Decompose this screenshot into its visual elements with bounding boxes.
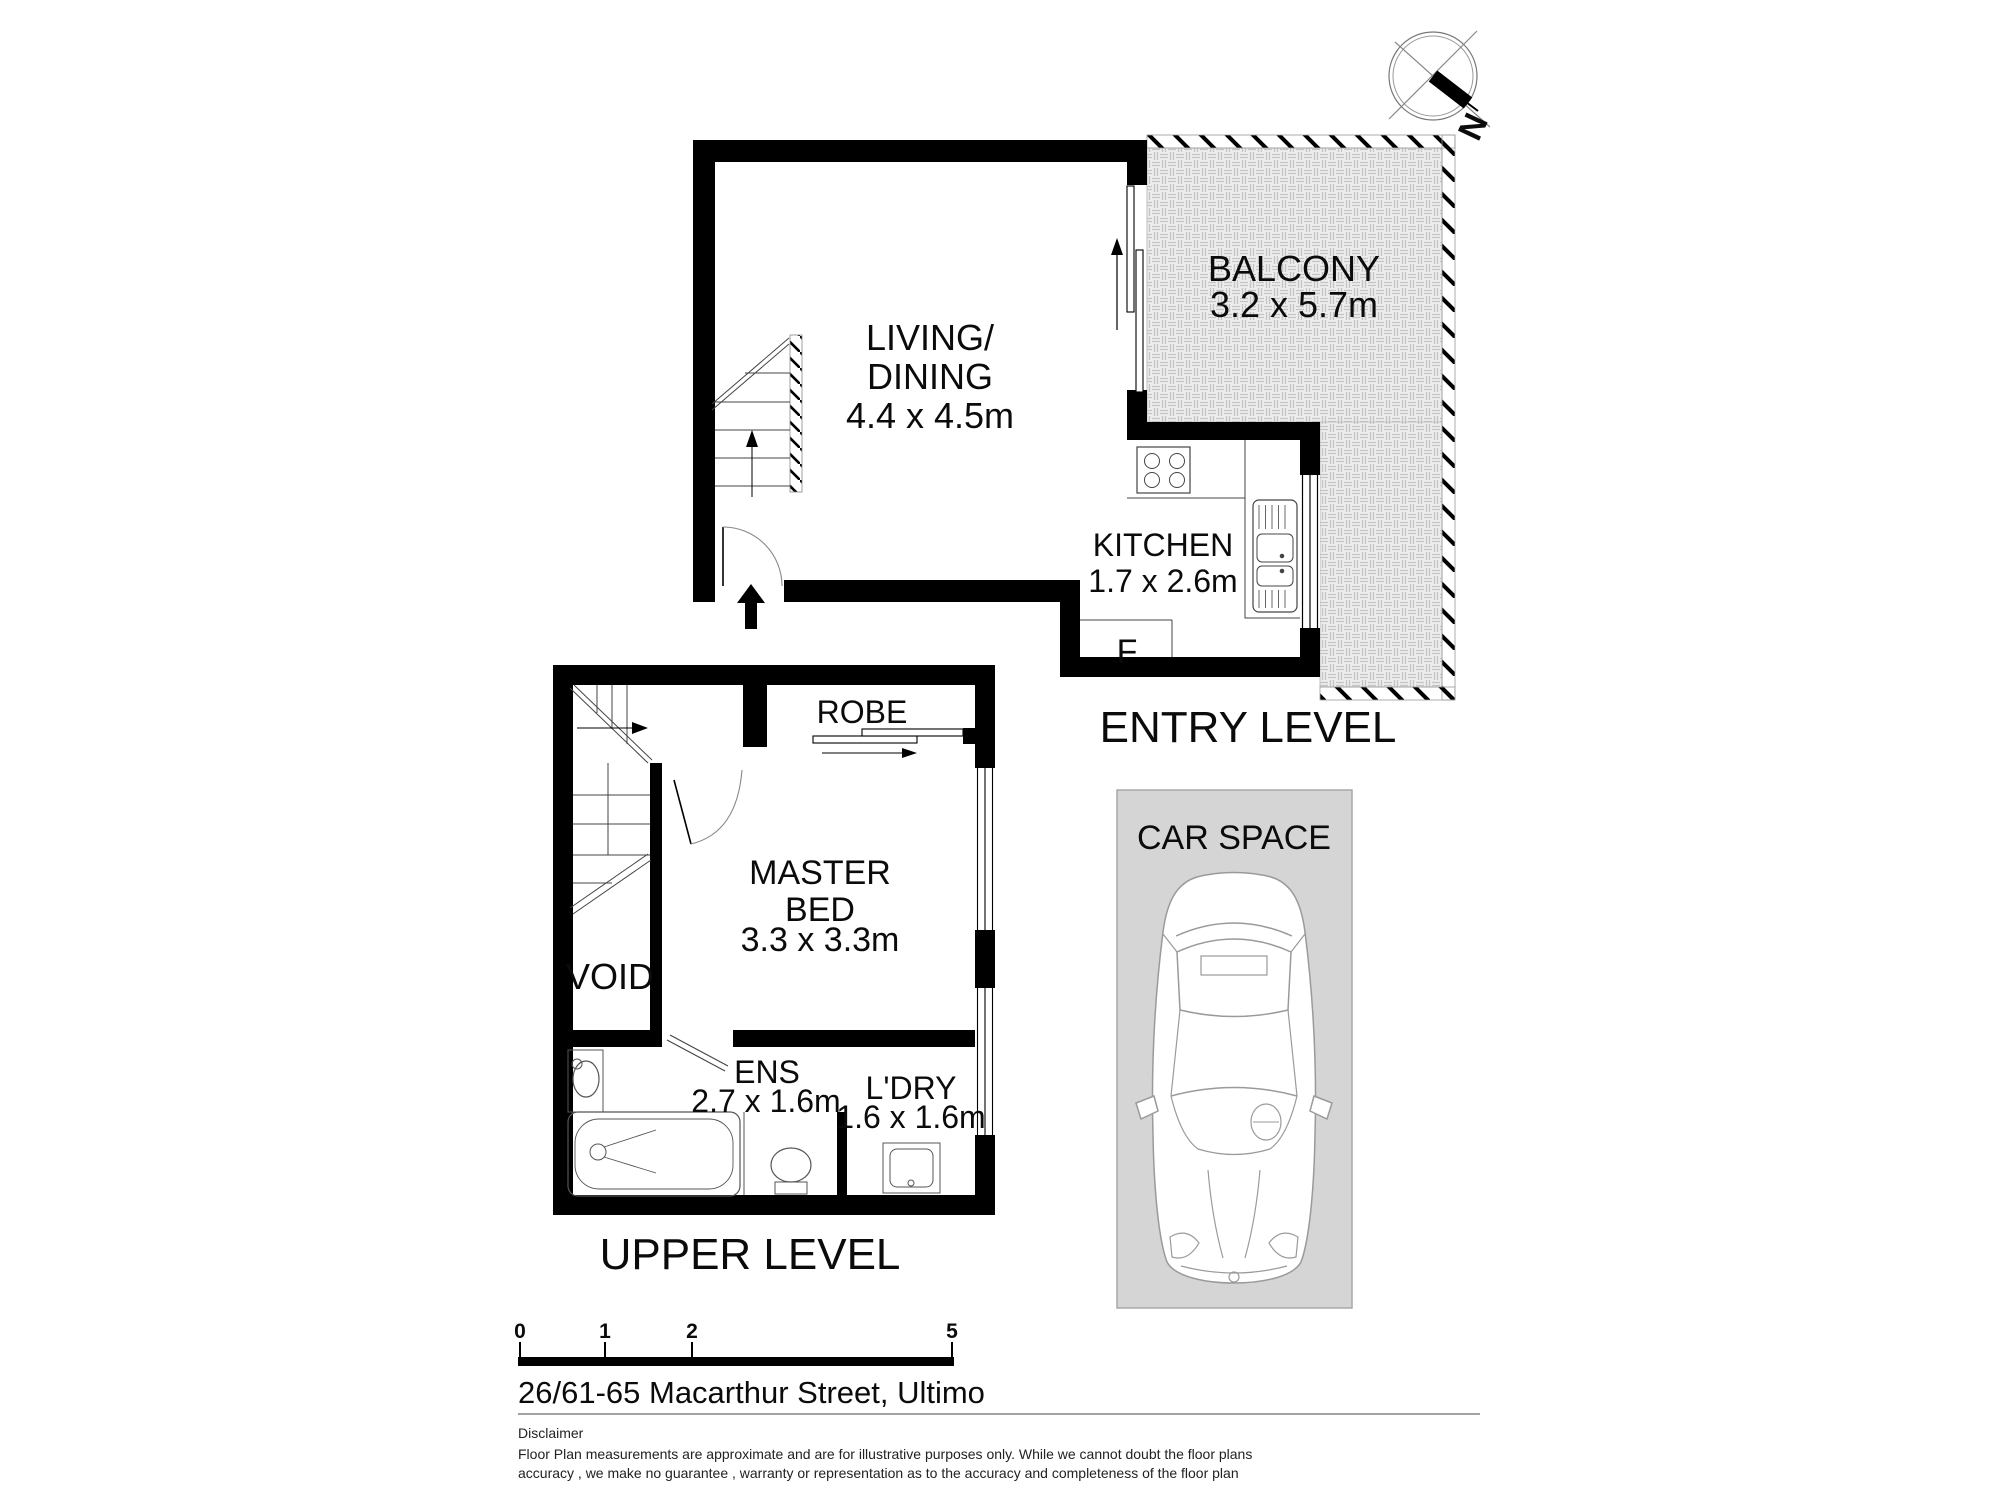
fridge-label: F <box>1117 633 1138 671</box>
dining-label: DINING <box>867 356 993 397</box>
laundry-tub <box>883 1143 940 1193</box>
scale-tick-5: 5 <box>946 1320 958 1343</box>
disclaimer-line2: accuracy , we make no guarantee , warran… <box>518 1465 1239 1481</box>
property-address: 26/61-65 Macarthur Street, Ultimo <box>518 1375 985 1410</box>
balcony-dims: 3.2 x 5.7m <box>1210 284 1378 325</box>
scale-bar: 0 1 2 5 <box>514 1320 958 1366</box>
balcony-label: BALCONY <box>1208 248 1380 289</box>
entry-level-title: ENTRY LEVEL <box>1100 703 1397 752</box>
car-roof <box>1177 939 1291 1017</box>
bedroom-window <box>975 768 995 930</box>
scale-tick-2: 2 <box>686 1320 698 1343</box>
ensuite-door <box>667 1035 728 1071</box>
robe-slide-arrow <box>902 748 917 758</box>
car-body <box>1152 873 1315 1284</box>
entry-level-plan: LIVING/ DINING 4.4 x 4.5m BALCONY 3.2 x … <box>693 135 1455 752</box>
living-dims: 4.4 x 4.5m <box>846 395 1014 436</box>
car-space-label: CAR SPACE <box>1137 819 1331 857</box>
master-dims: 3.3 x 3.3m <box>741 921 900 959</box>
balcony-hatch-top <box>1147 135 1455 148</box>
entry-door <box>723 527 782 629</box>
master-label: MASTER <box>749 854 891 892</box>
ensuite-dims: 2.7 x 1.6m <box>691 1083 840 1119</box>
balcony-hatch-right <box>1442 135 1455 700</box>
sink <box>1253 500 1297 612</box>
living-label: LIVING/ <box>866 317 994 358</box>
car-space: CAR SPACE <box>1117 790 1352 1308</box>
kitchen-label: KITCHEN <box>1093 527 1233 563</box>
stairs-up-arrow <box>746 430 758 447</box>
disclaimer-heading: Disclaimer <box>518 1425 584 1441</box>
car-sunroof <box>1201 956 1267 975</box>
void-label: VOID <box>566 956 654 997</box>
bathtub <box>568 1112 740 1196</box>
compass-rose: N <box>1389 31 1495 145</box>
toilet <box>771 1148 811 1194</box>
disclaimer-line1: Floor Plan measurements are approximate … <box>518 1446 1252 1462</box>
floor-plan-svg: N <box>0 0 2000 1500</box>
balcony-hatch-bottom <box>1320 687 1455 700</box>
robe-sliding-door <box>813 729 963 758</box>
entry-arrow <box>737 584 765 629</box>
stairs-direction-arrow <box>632 722 648 734</box>
entry-stairs <box>712 335 802 497</box>
master-bed-door <box>674 770 742 844</box>
slide-direction-arrow <box>1111 238 1123 255</box>
upper-level-title: UPPER LEVEL <box>600 1230 901 1279</box>
balcony-sliding-door <box>1111 186 1143 392</box>
basin <box>573 1061 599 1097</box>
scale-tick-1: 1 <box>599 1320 611 1343</box>
laundry-dims: 1.6 x 1.6m <box>836 1099 985 1135</box>
compass-needle <box>1433 76 1468 103</box>
upper-stairs <box>570 685 652 914</box>
car-top-view <box>1136 873 1332 1284</box>
kitchen-window <box>1300 475 1320 628</box>
upper-level-plan: ROBE MASTER BED 3.3 x 3.3m VOID ENS 2.7 … <box>553 665 995 1279</box>
kitchen-dims: 1.7 x 2.6m <box>1088 563 1237 599</box>
floor-plan-canvas: N <box>0 0 2000 1500</box>
robe-label: ROBE <box>817 694 908 730</box>
scale-tick-0: 0 <box>514 1320 526 1343</box>
